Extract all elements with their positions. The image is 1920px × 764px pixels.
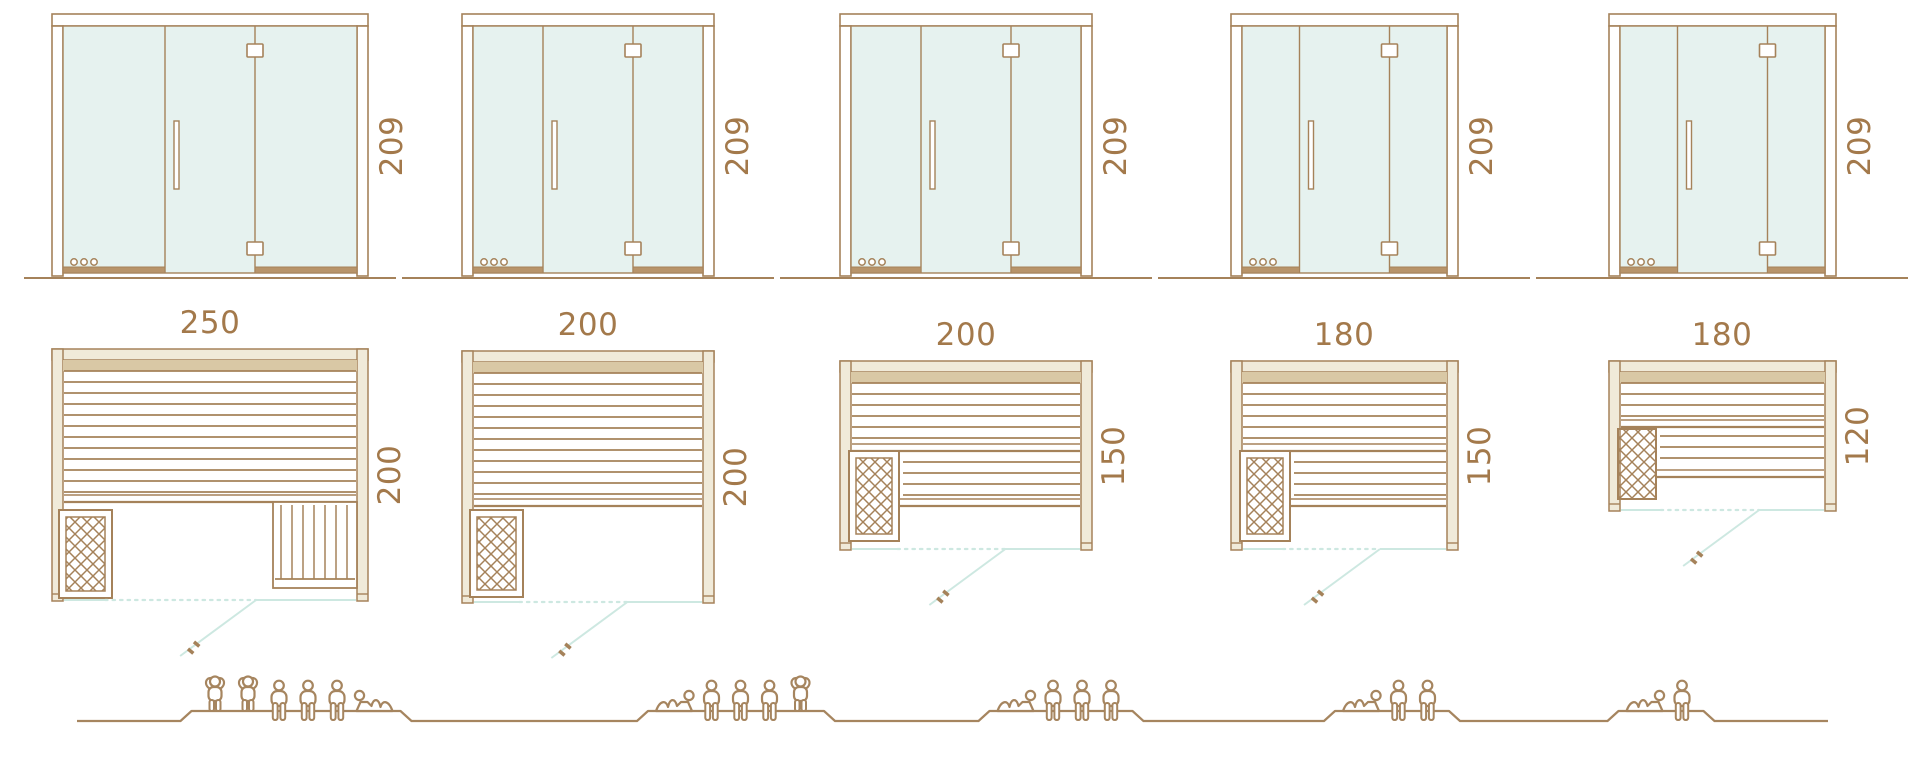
plan-width-label: 180 [1652,318,1792,352]
capacity-group-200x150 [998,681,1119,720]
door-elevation [839,13,1093,279]
sauna-size-diagram: 2092502002092002002092001502091801502091… [0,0,1920,764]
plan-depth-label: 200 [719,427,753,527]
capacity-illustration [0,648,1920,762]
plan-depth-label: 120 [1841,386,1875,486]
capacity-group-180x150 [1343,681,1435,720]
elevation-ground-line [24,277,396,279]
door-elevation [1230,13,1459,279]
plan-depth-label: 150 [1097,406,1131,506]
capacity-group-200x200 [656,677,810,721]
plan-depth-label: 200 [373,425,407,525]
door-elevation [1608,13,1837,279]
capacity-group-250x200 [206,677,393,721]
floor-plan [839,360,1093,613]
floor-plan [1608,360,1837,574]
plan-width-label: 180 [1274,318,1414,352]
elevation-ground-line [780,277,1152,279]
door-height-label: 209 [1465,96,1499,196]
door-elevation [51,13,369,279]
door-elevation [461,13,715,279]
elevation-ground-line [1536,277,1908,279]
floor-plan [51,348,369,664]
door-height-label: 209 [375,96,409,196]
floor-plan [461,350,715,666]
door-height-label: 209 [1843,96,1877,196]
elevation-ground-line [1158,277,1530,279]
plan-width-label: 250 [140,306,280,340]
floor-plan [1230,360,1459,613]
capacity-group-180x120 [1627,681,1690,720]
plan-width-label: 200 [518,308,658,342]
plan-depth-label: 150 [1463,406,1497,506]
door-height-label: 209 [721,96,755,196]
door-height-label: 209 [1099,96,1133,196]
plan-width-label: 200 [896,318,1036,352]
elevation-ground-line [402,277,774,279]
